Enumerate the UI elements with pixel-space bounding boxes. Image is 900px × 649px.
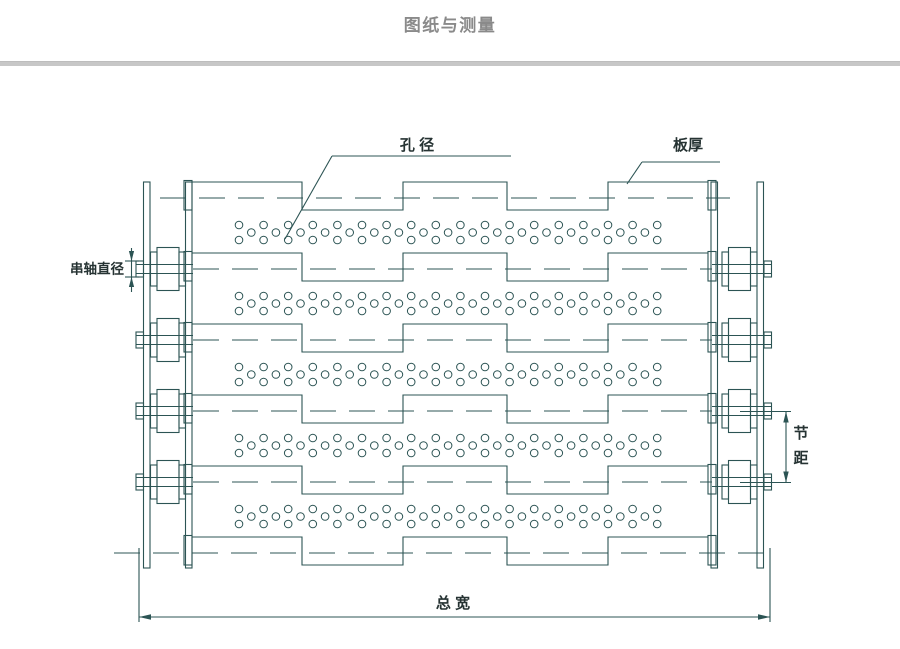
label-pitch-line1: 节 bbox=[793, 424, 808, 442]
label-total-width: 总 宽 bbox=[436, 594, 470, 612]
page: 图纸与测量 孔 径 板厚 串轴直径 节 距 总 宽 bbox=[0, 0, 900, 649]
label-shaft-diameter: 串轴直径 bbox=[70, 261, 124, 277]
label-hole-diameter: 孔 径 bbox=[400, 136, 434, 154]
drawing-linework bbox=[114, 156, 791, 622]
label-plate-thickness: 板厚 bbox=[673, 136, 703, 154]
label-pitch-line2: 距 bbox=[793, 450, 808, 467]
technical-drawing: 孔 径 板厚 串轴直径 节 距 总 宽 bbox=[0, 0, 900, 649]
